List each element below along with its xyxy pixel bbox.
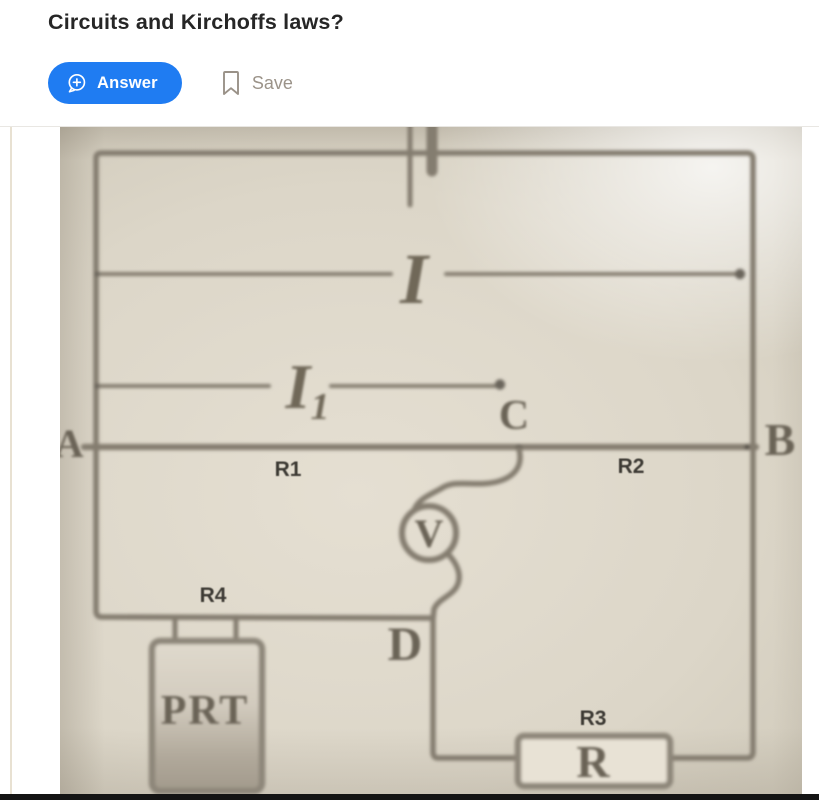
current-i1-label: I [285, 351, 313, 422]
circuit-diagram: A B C D V I I 1 R PRT R1 R2 R3 R4 [60, 127, 802, 794]
node-a-label: A [60, 421, 84, 466]
d-branch-wire [433, 620, 518, 758]
node-b-label: B [765, 414, 796, 465]
current-i1-arrowhead [495, 379, 505, 389]
question-header: Circuits and Kirchoffs laws? Answer Save [0, 0, 819, 127]
r4-label: R4 [200, 584, 227, 607]
current-i-arrowhead [735, 269, 745, 279]
r1-label: R1 [275, 458, 302, 481]
prt-label: PRT [161, 688, 250, 734]
current-i-start-dot [94, 271, 99, 276]
r2-label: R2 [618, 455, 645, 478]
node-c-label: C [499, 393, 529, 439]
current-i1-start-dot [94, 383, 99, 388]
current-i1-subscript: 1 [311, 386, 330, 428]
save-button[interactable]: Save [222, 70, 293, 96]
current-i-label: I [399, 239, 431, 319]
answer-button[interactable]: Answer [48, 62, 182, 104]
action-bar: Answer Save [48, 62, 293, 104]
bookmark-icon [222, 70, 240, 96]
voltmeter-lead-bottom [433, 553, 459, 619]
r3-label: R3 [580, 707, 607, 730]
voltmeter-lead-top [415, 449, 520, 508]
voltmeter-label: V [415, 511, 444, 556]
comment-plus-icon [65, 72, 88, 95]
save-button-label: Save [252, 73, 293, 94]
question-title: Circuits and Kirchoffs laws? [48, 10, 344, 35]
r3-body-letter: R [576, 736, 610, 787]
circuit-photo: A B C D V I I 1 R PRT R1 R2 R3 R4 [60, 127, 802, 794]
node-d-label: D [388, 618, 423, 671]
answer-button-label: Answer [97, 74, 158, 93]
bottom-black-bar [0, 794, 819, 800]
node-b-junction-dot [744, 444, 749, 449]
